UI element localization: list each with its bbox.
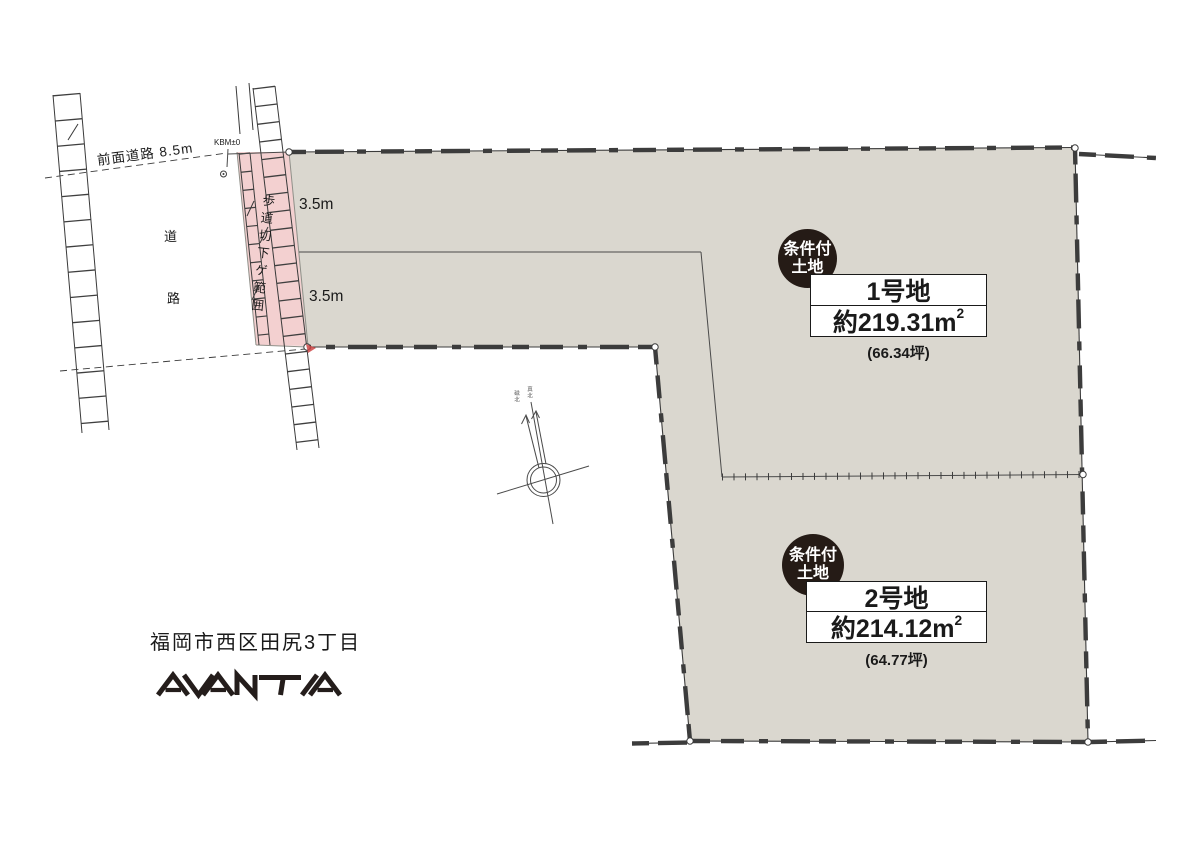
strip-width-bottom-label: 3.5m [309, 288, 343, 306]
left-sidewalk-band [53, 93, 109, 433]
site-plan-canvas: 前面道路 8.5m 道 路 KBM±0 3.5m 3.5m 歩道切下ゲ範囲 磁北… [0, 0, 1191, 842]
plot2-area-box: 約214.12m2 [806, 611, 987, 643]
plot1-badge-line1: 条件付 [783, 241, 831, 259]
plot2-badge-line1: 条件付 [789, 547, 837, 565]
plot1-area-sup: 2 [957, 306, 965, 321]
avantia-logo [158, 675, 340, 695]
road-dashed-bottom [60, 349, 305, 371]
plot1-area: 約219.31m [833, 303, 957, 339]
plot1-name-box: 1号地 [810, 274, 987, 306]
true-north-label: 真北 [525, 386, 533, 399]
site-plan-drawing [0, 0, 1191, 842]
plot2-area-sup: 2 [955, 613, 963, 628]
north-compass [497, 402, 589, 524]
plot2-name-box: 2号地 [806, 581, 987, 613]
pavement-edge-lines [236, 83, 253, 134]
plot2-area: 約214.12m [831, 609, 955, 645]
magnetic-north-label: 磁北 [512, 390, 520, 403]
benchmark-label: KBM±0 [214, 138, 240, 147]
strip-width-top-label: 3.5m [299, 196, 333, 214]
plot1-tsubo-label: (66.34坪) [810, 342, 987, 363]
road-kanji-1: 道 [164, 226, 177, 245]
benchmark-marker [221, 149, 229, 177]
plot1-area-box: 約219.31m2 [810, 305, 987, 337]
site-address: 福岡市西区田尻3丁目 [150, 626, 361, 655]
road-kanji-2: 路 [167, 288, 180, 307]
plot2-tsubo-label: (64.77坪) [806, 649, 987, 670]
